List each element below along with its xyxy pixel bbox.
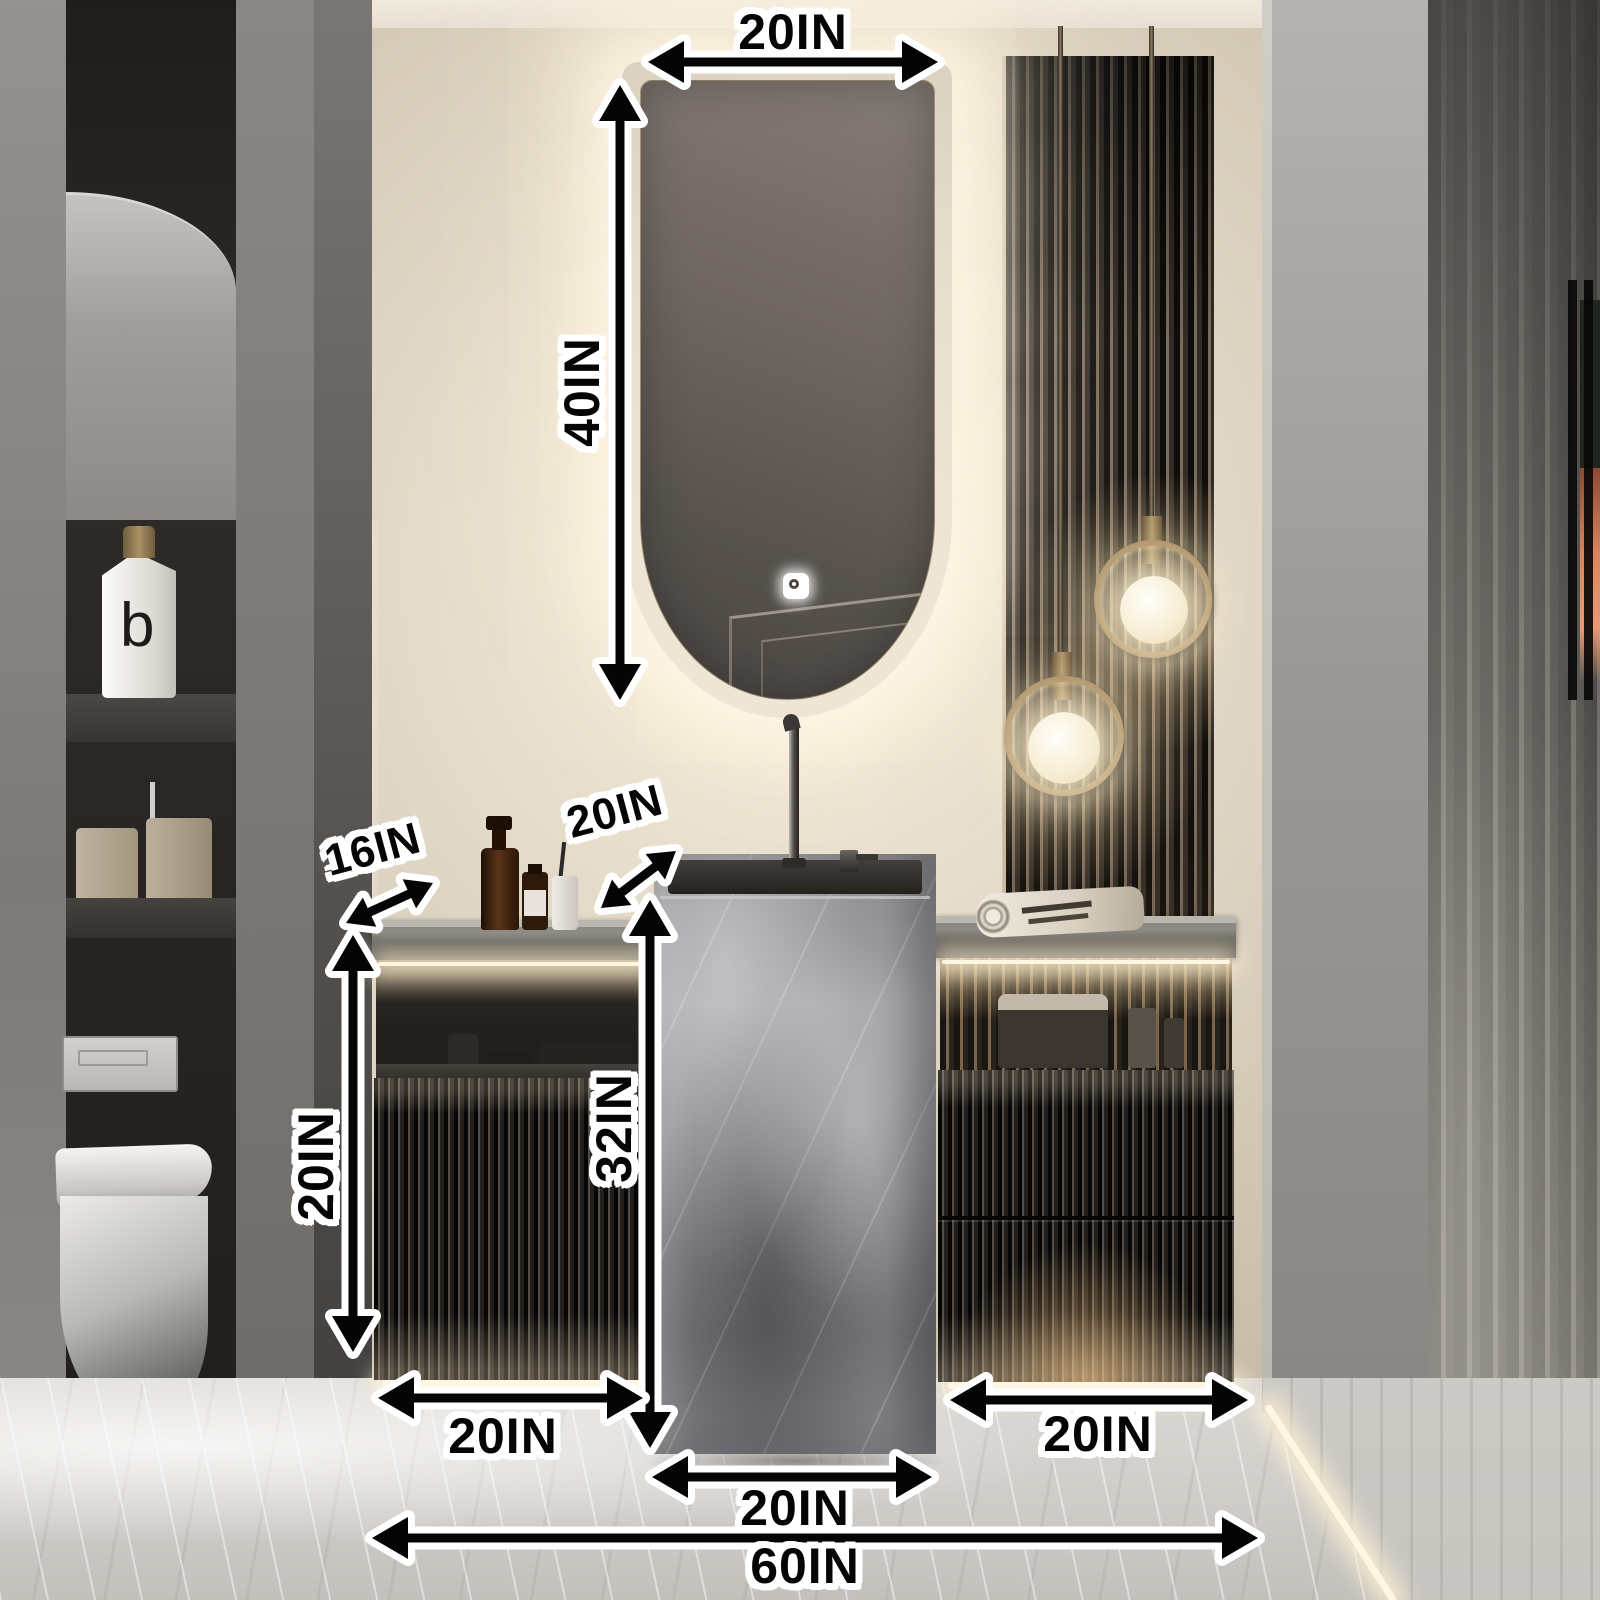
dim-label-basin-height: 32IN: [585, 1073, 643, 1183]
dimension-arrows: [0, 0, 1600, 1600]
bathroom-scene: b: [0, 0, 1600, 1600]
dim-label-mirror-height: 40IN: [553, 337, 611, 447]
dim-label-left-cabinet-width: 20IN: [448, 1407, 558, 1465]
dim-label-right-cabinet-width: 20IN: [1043, 1405, 1153, 1463]
dim-label-left-cabinet-height: 20IN: [287, 1111, 345, 1221]
dim-label-total-width: 60IN: [750, 1537, 860, 1595]
dim-label-mirror-width: 20IN: [738, 3, 848, 61]
dim-label-basin-width: 20IN: [740, 1479, 850, 1537]
